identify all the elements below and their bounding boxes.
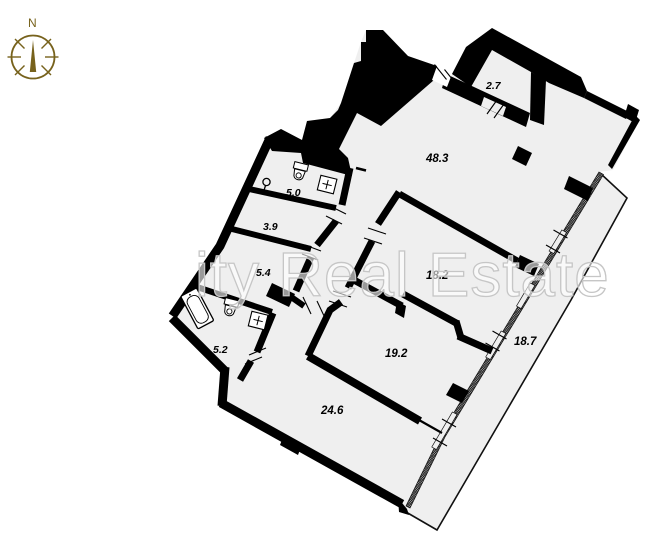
svg-text:18.7: 18.7 xyxy=(514,336,537,348)
svg-text:48.3: 48.3 xyxy=(425,153,449,165)
svg-text:3.9: 3.9 xyxy=(263,221,278,233)
svg-text:2.7: 2.7 xyxy=(485,80,502,92)
svg-text:24.6: 24.6 xyxy=(320,405,344,417)
svg-text:5.2: 5.2 xyxy=(213,344,228,356)
svg-text:ity Real Estate: ity Real Estate xyxy=(195,241,610,310)
svg-text:5.0: 5.0 xyxy=(286,187,301,199)
svg-text:19.2: 19.2 xyxy=(385,348,408,360)
svg-text:N: N xyxy=(28,16,37,30)
